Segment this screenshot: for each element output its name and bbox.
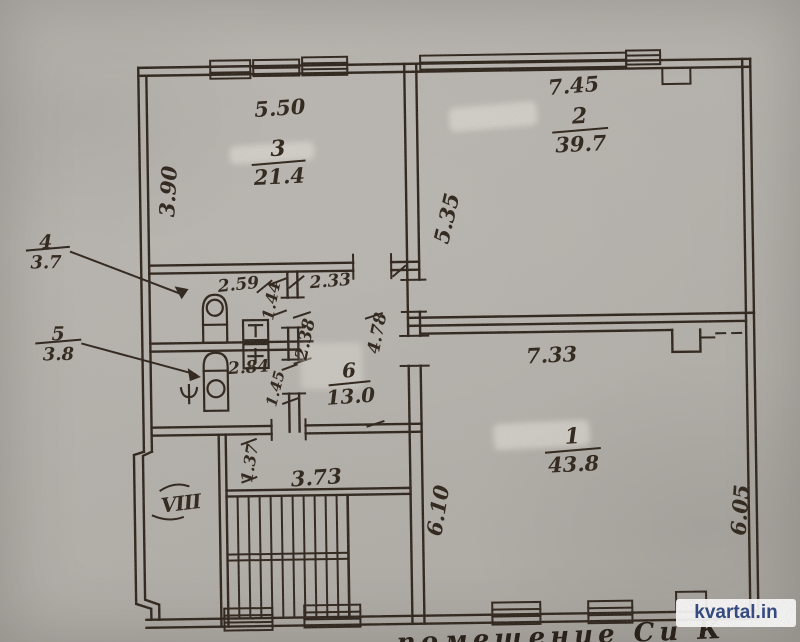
room-2-area: 39.7 [555, 132, 607, 157]
room-4-label: 4 3.7 [30, 233, 62, 273]
dim-corridor-length: 3.73 [290, 465, 342, 489]
room-6-area: 13.0 [326, 385, 376, 409]
room-5-label: 5 3.8 [42, 325, 74, 365]
shower-symbol [181, 385, 197, 403]
room2-room1-wall [408, 313, 755, 356]
room1-top-shaft-notch [672, 330, 700, 352]
dim-room1-width: 7.33 [525, 343, 577, 367]
floor-plan: 3 21.4 2 39.7 1 43.8 6 13.0 4 3.7 5 3 [0, 0, 800, 642]
room-1-area: 43.8 [548, 452, 600, 477]
room-3-number: 3 [270, 137, 286, 160]
room-2-number: 2 [571, 105, 587, 128]
room-3-area: 21.4 [253, 164, 305, 189]
bathtub-fixture [203, 353, 228, 411]
dim-hall-top: 2.33 [309, 272, 352, 292]
central-vertical-wall [396, 64, 432, 624]
room-5-area: 3.8 [43, 346, 75, 365]
dim-bath-width: 2.84 [227, 358, 269, 378]
room-4-number: 4 [39, 233, 53, 252]
floor-plan-linework [0, 0, 800, 642]
room-3-label: 3 21.4 [250, 136, 306, 189]
room3-bottom-wall [149, 254, 419, 282]
leader-room5 [82, 342, 194, 376]
toilet-bowl [207, 300, 223, 316]
fixtures [180, 294, 270, 411]
dim-room3-width: 5.50 [254, 96, 306, 120]
room-4-area: 3.7 [30, 254, 62, 273]
bath-drain [207, 380, 224, 397]
dim-room2-width: 7.45 [547, 73, 600, 98]
room-5-number: 5 [51, 325, 65, 344]
stair-left-wall [219, 435, 229, 627]
room-6-label: 6 13.0 [324, 359, 376, 409]
dim-room1-depth-right: 6.05 [728, 484, 753, 537]
dim-room3-depth: 3.90 [156, 165, 180, 217]
room-1-number: 1 [564, 425, 580, 448]
leader-room5-arrow [188, 368, 201, 381]
room-2-label: 2 39.7 [551, 104, 609, 157]
top-wall-windows [210, 50, 690, 91]
staircase [227, 497, 350, 617]
scanned-floor-plan-photo: 3 21.4 2 39.7 1 43.8 6 13.0 4 3.7 5 3 [0, 0, 800, 642]
room-1-label: 1 43.8 [544, 424, 602, 477]
dim-wc-width: 2.59 [217, 275, 260, 296]
toilet-fixture [203, 295, 228, 343]
watermark-badge: kvartal.in [676, 599, 796, 627]
stairwell-label: VIII [160, 491, 202, 516]
room2-shaft-notch [662, 68, 690, 84]
watermark-text: kvartal.in [694, 602, 777, 624]
room-6-number: 6 [341, 360, 356, 381]
